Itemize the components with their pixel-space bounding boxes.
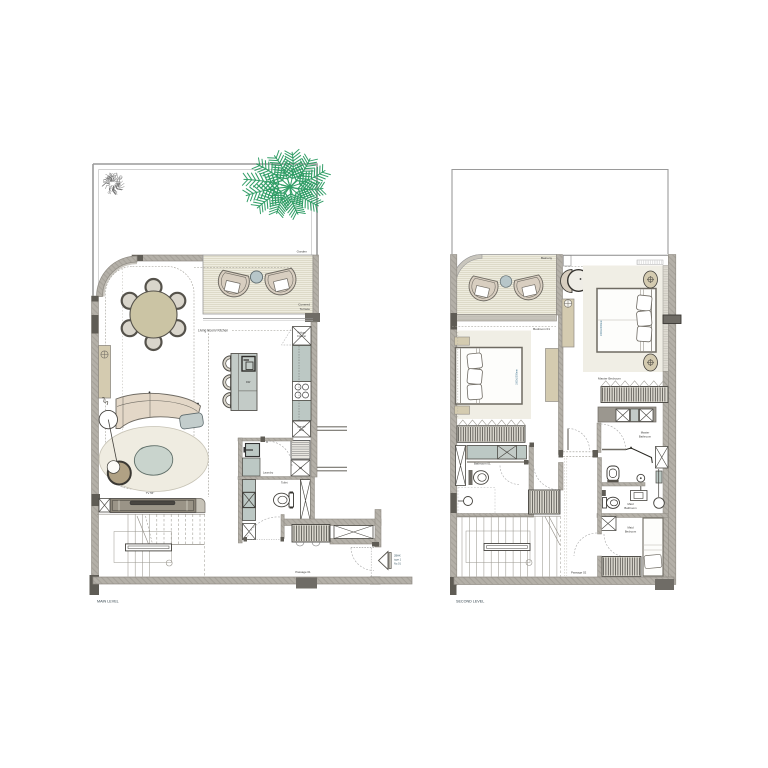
svg-text:Passage 02: Passage 02 <box>571 571 587 575</box>
svg-text:MAIN LEVEL: MAIN LEVEL <box>97 600 119 604</box>
svg-text:Bedroom: Bedroom <box>625 529 637 533</box>
svg-text:SECOND LEVEL: SECOND LEVEL <box>456 600 484 604</box>
svg-text:TV 55": TV 55" <box>146 491 154 495</box>
svg-text:Laundry: Laundry <box>263 471 274 475</box>
svg-text:2000x2000mm: 2000x2000mm <box>600 320 603 336</box>
svg-text:Duto: Duto <box>299 429 305 432</box>
svg-text:DB: DB <box>299 466 303 470</box>
svg-text:2BHK: 2BHK <box>394 554 401 558</box>
svg-text:1800x2000mm: 1800x2000mm <box>516 369 519 385</box>
svg-text:Balcony: Balcony <box>541 256 552 260</box>
svg-text:Master Bedroom: Master Bedroom <box>598 377 621 381</box>
svg-text:DW: DW <box>246 380 251 384</box>
svg-text:Living Room/ Kitchen: Living Room/ Kitchen <box>198 329 228 333</box>
svg-text:No.01: No.01 <box>394 562 401 566</box>
svg-text:Bedroom 01: Bedroom 01 <box>533 327 550 331</box>
svg-text:Freezer: Freezer <box>297 334 306 338</box>
svg-text:type 1: type 1 <box>394 558 402 562</box>
svg-text:Bathroom: Bathroom <box>624 506 637 510</box>
svg-text:Passage 01: Passage 01 <box>295 570 311 574</box>
svg-text:Toilet: Toilet <box>281 481 288 485</box>
svg-text:Fridge/: Fridge/ <box>298 331 306 335</box>
svg-text:Terrace: Terrace <box>300 307 311 311</box>
svg-text:Bathroom: Bathroom <box>639 434 652 438</box>
svg-text:Garden: Garden <box>297 250 308 254</box>
